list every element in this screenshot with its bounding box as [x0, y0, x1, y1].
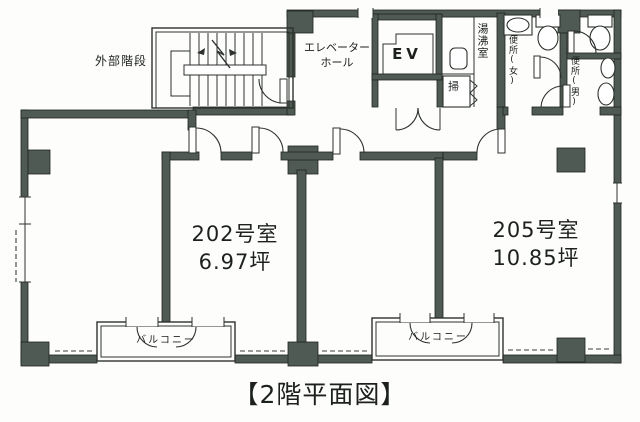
- hot-water-room-label: 湯沸室: [477, 23, 488, 73]
- external-stairs-label: 外部階段: [95, 52, 147, 69]
- elevator-shaft: [372, 14, 443, 130]
- balcony-right-label: バルコニー: [388, 328, 488, 343]
- cleaning-closet-label: 掃: [448, 78, 459, 94]
- plan-title: 【2階平面図】: [160, 375, 480, 411]
- room-202-name: 202号室: [165, 221, 305, 248]
- floor-plan-page: 外部階段 エレベーター ホール EV 湯沸室 便所(女) 便所(男) 掃 202…: [0, 0, 640, 422]
- external-staircase: [152, 28, 293, 108]
- room-202-area: 6.97坪: [165, 249, 305, 276]
- toilet-women-label: 便所(女): [507, 35, 516, 93]
- elevator-hall-label-line1: エレベーター: [292, 39, 382, 55]
- corridor-doors: [189, 127, 505, 154]
- elevator-label: EV: [384, 45, 430, 63]
- toilet-men-label: 便所(男): [569, 56, 578, 114]
- room-205-area: 10.85坪: [466, 245, 606, 272]
- room-205-name: 205号室: [466, 217, 606, 244]
- balcony-left-label: バルコニー: [116, 331, 216, 346]
- elevator-hall-label-line2: ホール: [292, 54, 382, 70]
